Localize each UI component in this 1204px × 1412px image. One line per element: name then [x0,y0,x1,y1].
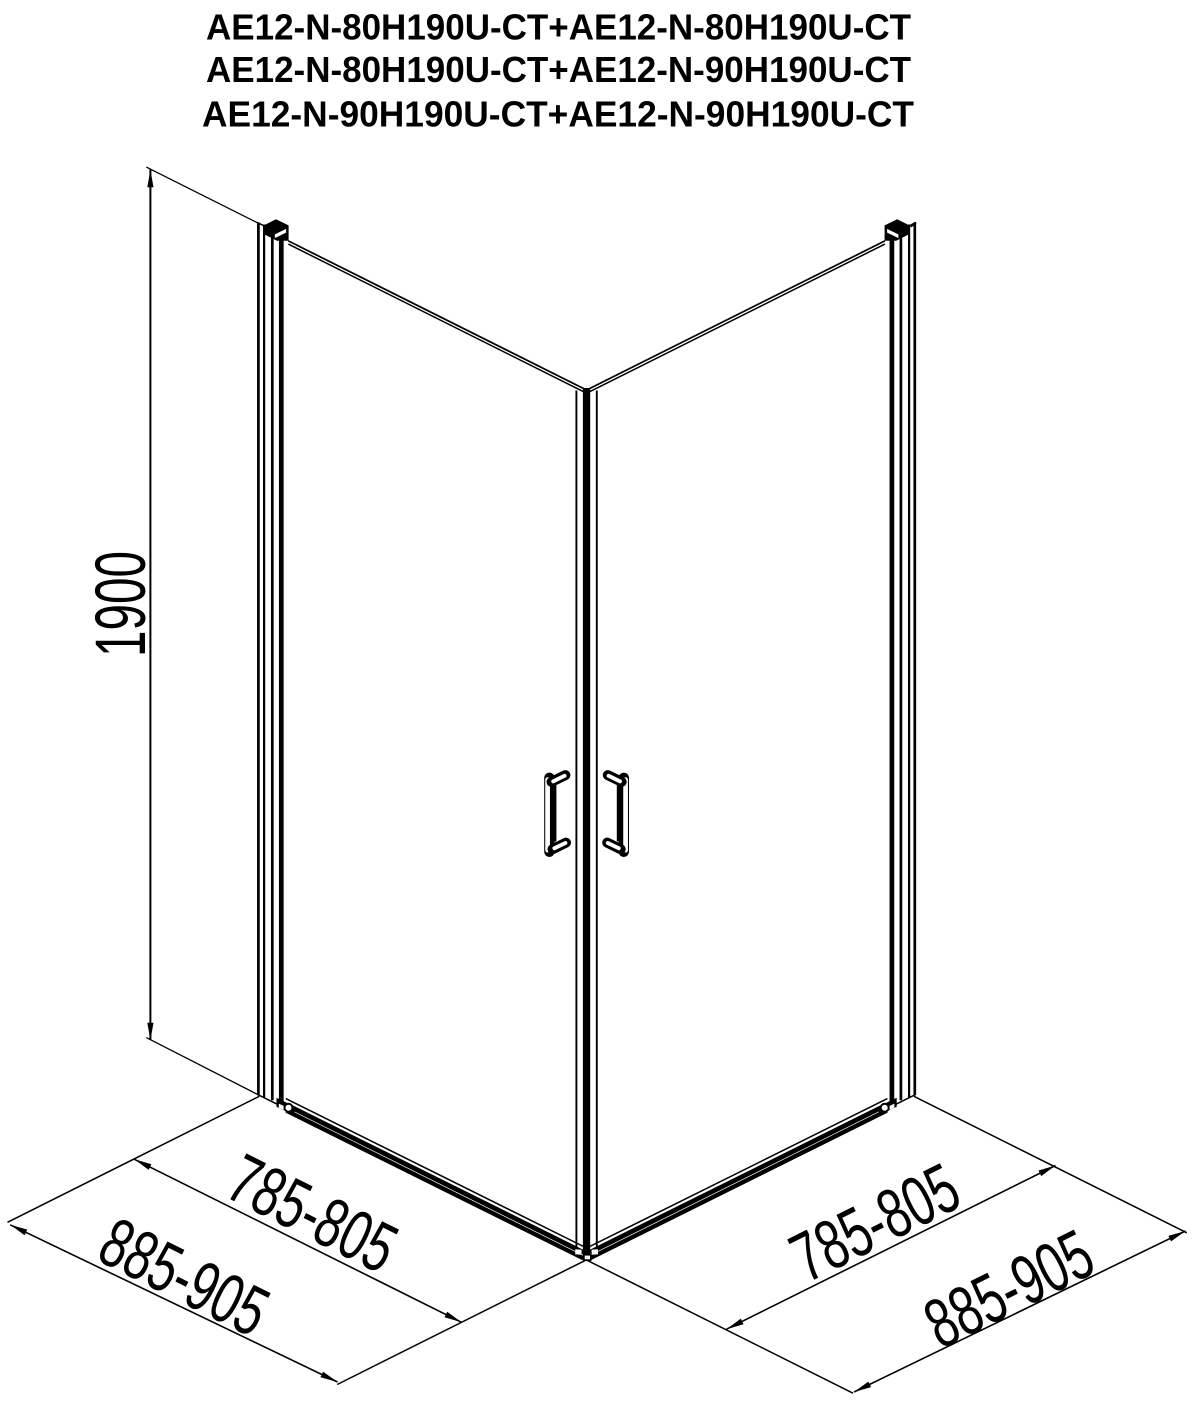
svg-text:AE12-N-80H190U-CT+AE12-N-90H19: AE12-N-80H190U-CT+AE12-N-90H190U-CT [206,49,911,90]
svg-text:885-905: 885-905 [912,1214,1105,1363]
svg-text:AE12-N-80H190U-CT+AE12-N-80H19: AE12-N-80H190U-CT+AE12-N-80H190U-CT [206,6,911,47]
svg-text:1900: 1900 [82,551,161,657]
svg-text:785-805: 785-805 [778,1148,971,1297]
svg-text:AE12-N-90H190U-CT+AE12-N-90H19: AE12-N-90H190U-CT+AE12-N-90H190U-CT [202,93,914,134]
